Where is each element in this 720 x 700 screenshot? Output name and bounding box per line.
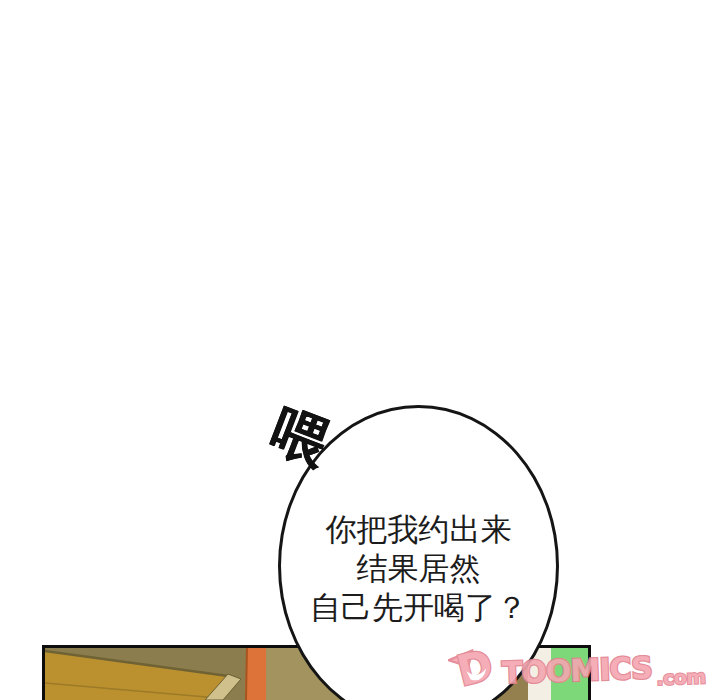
toomics-d-logo-icon: D bbox=[448, 640, 498, 698]
toomics-watermark: D TOOMICS .com bbox=[448, 640, 718, 700]
panel-border-left bbox=[42, 645, 45, 700]
orange-strip-edge bbox=[246, 645, 247, 700]
watermark-suffix-text: .com bbox=[656, 665, 706, 689]
speech-line-2: 结果居然 bbox=[278, 549, 559, 588]
orange-strip bbox=[245, 645, 266, 700]
speech-bubble-text: 你把我约出来 结果居然 自己先开喝了？ bbox=[278, 510, 559, 627]
watermark-brand-text: TOOMICS bbox=[501, 650, 652, 690]
comic-page-background: 你把我约出来 结果居然 自己先开喝了？ 喂 D TOOMICS .com bbox=[0, 0, 720, 700]
logo-d-letter: D bbox=[452, 640, 498, 696]
speech-line-1: 你把我约出来 bbox=[278, 510, 559, 549]
speech-line-3: 自己先开喝了？ bbox=[278, 588, 559, 627]
